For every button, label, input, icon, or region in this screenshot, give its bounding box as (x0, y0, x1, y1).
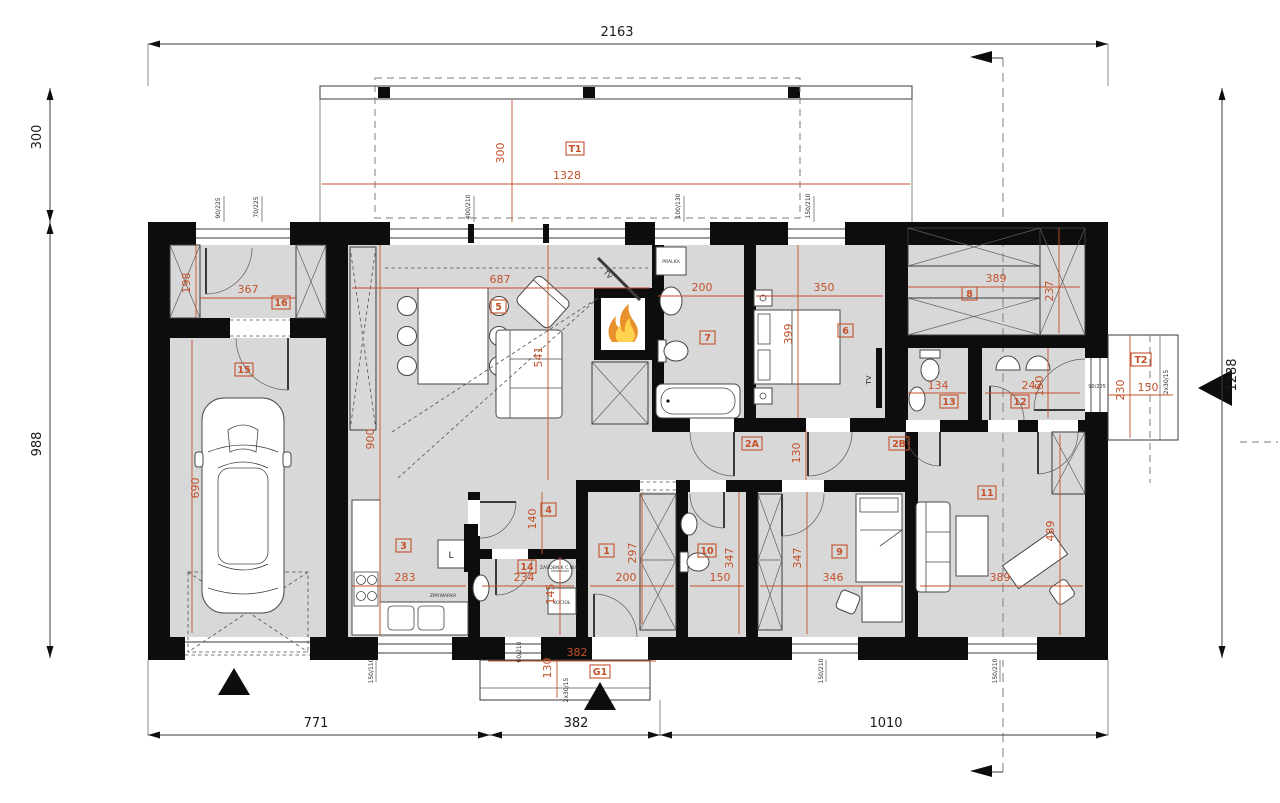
dim-r14-w: 234 (514, 571, 535, 584)
room-label-6: 6 (842, 326, 849, 337)
room-label-7: 7 (704, 333, 711, 344)
dim-t1-width: 1328 (553, 169, 581, 182)
room-label-2a: 2A (745, 439, 760, 450)
entrance-arrow-g1 (584, 682, 616, 710)
window-bath7-top (655, 222, 710, 245)
window-garage-top (196, 222, 290, 245)
dim-win-kitchen: 150/110 (368, 658, 375, 683)
window-room11-bottom (968, 637, 1037, 660)
dim-win-bed9: 150/210 (818, 658, 825, 683)
dim-r16-w: 367 (238, 283, 259, 296)
dim-t2-depth: 230 (1114, 380, 1127, 401)
dim-right-main: 1288 (1225, 358, 1240, 391)
dim-t1-depth: 300 (494, 143, 507, 164)
dim-r10-w: 150 (710, 571, 731, 584)
fireplace (594, 288, 652, 360)
tv-bed6-label: TV (865, 375, 873, 385)
dim-r9-w: 346 (823, 571, 844, 584)
window-bed6-top (788, 222, 845, 245)
dishwasher-label: ZMYWARKA (430, 593, 457, 599)
dim-r5-h: 541 (532, 347, 545, 368)
dim-bottom-left: 771 (304, 716, 329, 731)
dim-r8-h: 237 (1043, 281, 1056, 302)
terrace-post (378, 87, 390, 98)
dim-r9-h: 347 (791, 548, 804, 569)
dim-r11-w: 389 (990, 571, 1011, 584)
terrace-post (583, 87, 595, 98)
dim-bottom-mid: 382 (564, 716, 589, 731)
dim-r4-h: 140 (526, 509, 539, 530)
dim-r5-w: 687 (490, 273, 511, 286)
dim-r11-h: 489 (1044, 521, 1057, 542)
window-living-top (390, 222, 625, 245)
dim-r3-w: 283 (395, 571, 416, 584)
dim-r8-w: 389 (986, 272, 1007, 285)
dim-total-width: 2163 (600, 25, 633, 40)
dim-win-garage-a: 90/225 (215, 197, 222, 218)
dim-r2a-h: 130 (790, 443, 803, 464)
terrace-t2-label: T2 (1134, 355, 1147, 366)
dim-win-room11: 150/210 (992, 658, 999, 683)
dim-r15-h: 690 (189, 478, 202, 499)
room-label-13: 13 (942, 397, 955, 408)
dim-r16-h: 198 (180, 273, 193, 294)
section-arrow-top (970, 51, 992, 63)
dim-left-main: 988 (30, 432, 45, 457)
garage-car (195, 398, 291, 613)
dim-win-garage-b: 70/225 (253, 196, 260, 217)
room-label-4: 4 (545, 505, 552, 516)
dim-r13-w: 134 (928, 379, 949, 392)
room-label-16: 16 (274, 298, 288, 309)
dim-g1-steps: 2x30/15 (563, 677, 570, 702)
dim-t2-steps: 2x30/15 (1163, 369, 1170, 394)
dim-g1-depth: 130 (541, 658, 554, 679)
dim-win-bed6: 150/210 (805, 193, 812, 218)
dim-left-top: 300 (30, 125, 45, 150)
washer-label: PRALKA (662, 259, 680, 265)
room-label-9: 9 (836, 547, 843, 558)
room-label-2b: 2B (892, 439, 906, 450)
room-label-12: 12 (1013, 397, 1026, 408)
dim-r6-w: 350 (814, 281, 835, 294)
room-label-15: 15 (237, 365, 250, 376)
section-arrow-bottom (970, 765, 992, 777)
room-label-10: 10 (700, 546, 714, 557)
dim-win-util: 60/210 (516, 641, 523, 662)
dim-t2-door: 90/205 (1088, 384, 1106, 390)
room-label-5: 5 (495, 302, 502, 313)
fridge-label: L (448, 551, 453, 561)
terrace-t1: T1 300 1328 (320, 78, 912, 222)
dim-r12-h: 150 (1033, 376, 1046, 397)
dim-r1-w: 200 (616, 571, 637, 584)
room-label-8: 8 (966, 289, 973, 300)
dining-set (398, 288, 509, 384)
floor-plan-drawing: T1 300 1328 (0, 0, 1280, 803)
dim-r10-h: 347 (723, 548, 736, 569)
dim-g1-width: 382 (567, 646, 588, 659)
room-label-1: 1 (603, 546, 610, 557)
entrance-arrow-garage (218, 668, 250, 695)
terrace-post (788, 87, 800, 98)
window-kitchen-bottom (378, 637, 452, 660)
window-util-bottom (505, 637, 541, 660)
dim-win-living: 400/210 (465, 194, 472, 219)
dim-r7-w: 200 (692, 281, 713, 294)
dim-r14-h: 145 (544, 584, 557, 605)
dim-r3-h: 900 (364, 429, 377, 450)
dim-t2-width: 150 (1138, 381, 1159, 394)
window-bed9-bottom (792, 637, 858, 660)
room-label-11: 11 (980, 488, 993, 499)
terrace-t1-label: T1 (568, 144, 581, 155)
dim-r6-h: 399 (782, 324, 795, 345)
terrace-t2: T2 230 150 2x30/15 90/205 (1088, 335, 1278, 483)
dim-bottom-right: 1010 (869, 716, 902, 731)
dim-win-bath7: 100/130 (675, 193, 682, 218)
dim-r1-h: 297 (626, 543, 639, 564)
floor-plan-canvas: T1 300 1328 (0, 0, 1280, 803)
room-label-3: 3 (400, 541, 407, 552)
porch-g1-label: G1 (593, 667, 607, 678)
